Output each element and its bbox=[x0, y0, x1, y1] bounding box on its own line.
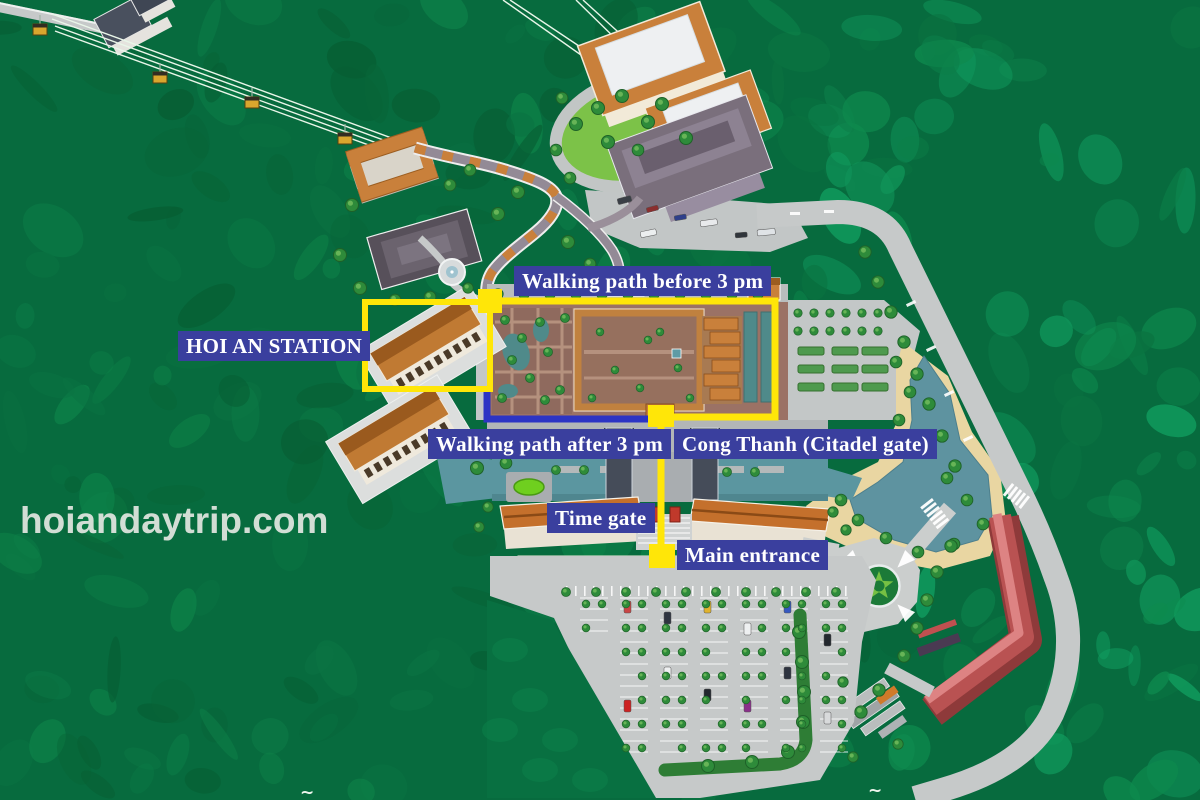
reflecting-pool bbox=[744, 312, 757, 402]
label-walking-path-before-3pm: Walking path before 3 pm bbox=[514, 266, 771, 296]
hedge-garden bbox=[798, 347, 888, 391]
label-walking-path-after-3pm: Walking path after 3 pm bbox=[428, 429, 671, 459]
green-pool bbox=[514, 479, 544, 495]
marker-station bbox=[478, 289, 502, 313]
map-canvas: Walking path before 3 pm HOI AN STATION … bbox=[0, 0, 1200, 800]
decor-tilde: ~ bbox=[868, 781, 882, 800]
marker-main-entrance bbox=[649, 544, 675, 568]
marker-citadel-gate bbox=[648, 405, 674, 427]
inner-citadel-wall bbox=[578, 313, 700, 407]
label-cong-thanh-citadel-gate: Cong Thanh (Citadel gate) bbox=[674, 429, 937, 459]
label-main-entrance: Main entrance bbox=[677, 540, 828, 570]
decor-tilde: ~ bbox=[300, 783, 314, 800]
label-hoi-an-station: HOI AN STATION bbox=[178, 331, 370, 361]
label-time-gate: Time gate bbox=[547, 503, 655, 533]
watermark: hoiandaytrip.com bbox=[20, 500, 328, 542]
site-map-illustration bbox=[0, 0, 1200, 800]
